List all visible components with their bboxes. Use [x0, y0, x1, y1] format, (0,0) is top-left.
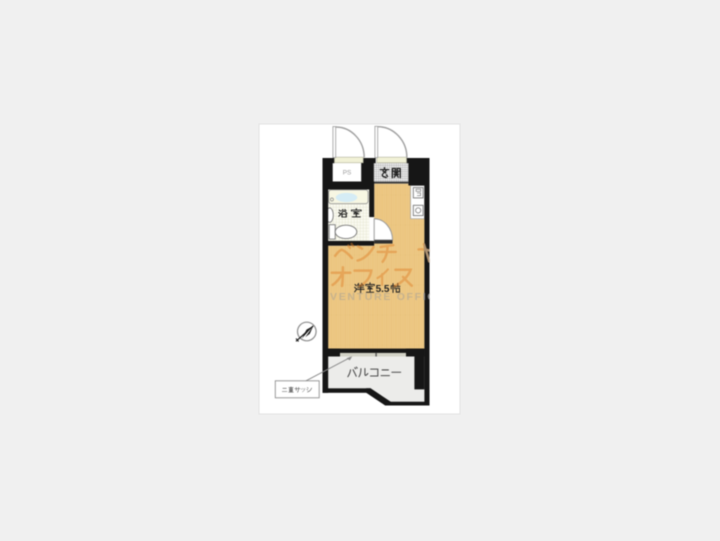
svg-text:PS: PS — [343, 169, 352, 176]
